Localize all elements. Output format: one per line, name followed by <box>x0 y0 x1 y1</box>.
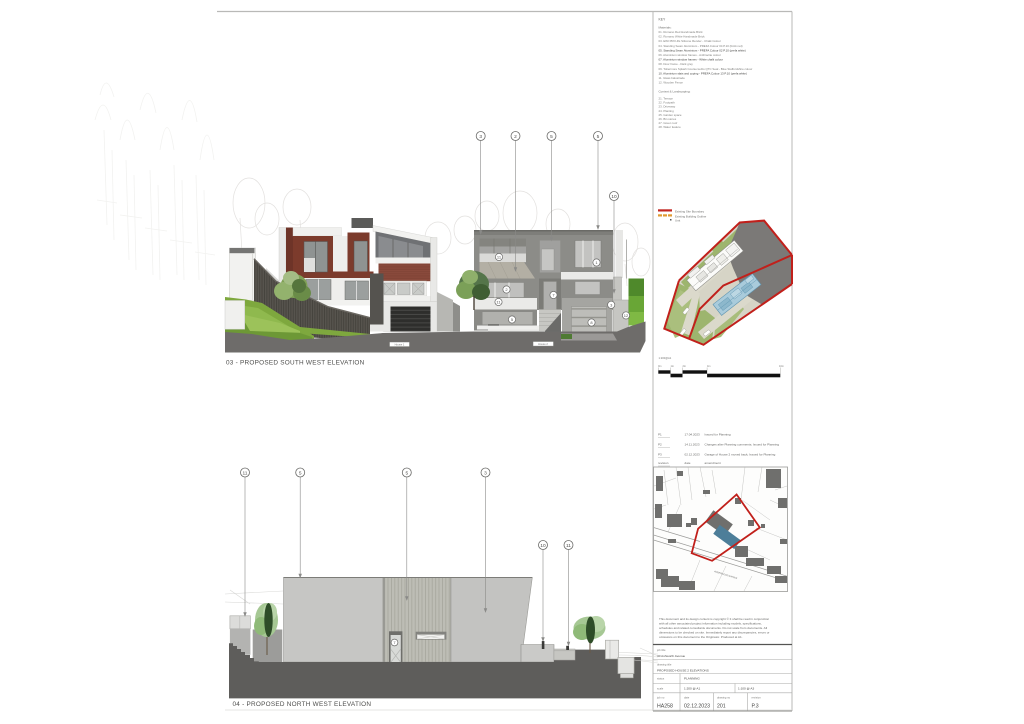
svg-text:1:100 @ A3: 1:100 @ A3 <box>738 687 754 691</box>
svg-text:HA258: HA258 <box>657 704 673 710</box>
svg-text:17.04.2023: 17.04.2023 <box>685 433 701 437</box>
svg-text:job title: job title <box>656 648 666 652</box>
svg-text:3: 3 <box>479 134 482 140</box>
svg-text:02.12.2023: 02.12.2023 <box>685 453 701 457</box>
svg-text:schedules and related consulta: schedules and related consultants docume… <box>659 626 767 630</box>
svg-text:1:200@A1: 1:200@A1 <box>659 356 672 360</box>
svg-text:5: 5 <box>299 470 302 476</box>
svg-text:Changes after Planning comment: Changes after Planning comments; Issued … <box>705 443 780 447</box>
svg-text:revision: revision <box>752 696 762 700</box>
svg-text:14.11.2023: 14.11.2023 <box>685 443 700 447</box>
svg-text:09. Tobermore Splash Course k: 09. Tobermore Splash Course kerbs QTC Se… <box>659 67 753 71</box>
svg-text:11: 11 <box>243 470 248 476</box>
svg-text:date: date <box>684 696 690 700</box>
svg-text:drawing title: drawing title <box>657 663 672 667</box>
svg-text:P.3: P.3 <box>752 704 759 710</box>
svg-text:4m: 4m <box>707 365 710 368</box>
svg-text:12: 12 <box>624 313 629 318</box>
svg-text:07. Aluminium window frames -: 07. Aluminium window frames - White chal… <box>659 58 723 62</box>
svg-text:Materials:: Materials: <box>659 26 672 30</box>
svg-text:1m: 1m <box>671 365 674 368</box>
svg-text:revision: revision <box>658 461 669 465</box>
svg-text:11. Glass balustrade: 11. Glass balustrade <box>659 76 686 80</box>
svg-text:job no: job no <box>656 696 665 700</box>
svg-text:5: 5 <box>597 134 600 140</box>
svg-text:status: status <box>657 677 665 681</box>
svg-text:04. Standing Seam Aluminium -: 04. Standing Seam Aluminium - PREFA Colo… <box>659 44 743 48</box>
svg-text:PLANNING: PLANNING <box>684 677 700 681</box>
svg-text:11: 11 <box>566 543 571 549</box>
svg-text:03. EWI PRO-Rs Silicone Rende: 03. EWI PRO-Rs Silicone Render - Chalk C… <box>659 39 721 43</box>
svg-text:28. Water feature: 28. Water feature <box>659 125 682 129</box>
svg-text:P3: P3 <box>658 453 662 457</box>
svg-text:12. Wooden Fence: 12. Wooden Fence <box>659 81 684 85</box>
svg-text:dimensions to be checked on si: dimensions to be checked on site. Immedi… <box>659 631 769 635</box>
svg-text:01. Romano Red Handmade Brick: 01. Romano Red Handmade Brick <box>659 30 704 34</box>
svg-text:scale: scale <box>657 687 664 691</box>
svg-text:Unit: Unit <box>675 218 680 222</box>
svg-text:06. Aluminium window frames -: 06. Aluminium window frames - Anthracite… <box>659 53 721 57</box>
svg-text:05. Standing Seam Aluminium -: 05. Standing Seam Aluminium - PREFA Colo… <box>659 48 746 52</box>
svg-text:10: 10 <box>540 543 546 549</box>
svg-text:10. Aluminium slats and copin: 10. Aluminium slats and coping - PREFA C… <box>659 71 747 75</box>
svg-text:House 1: House 1 <box>395 343 405 347</box>
svg-text:This document and its design c: This document and its design content is … <box>659 617 769 621</box>
svg-text:5: 5 <box>405 470 408 476</box>
svg-text:P2: P2 <box>658 443 662 447</box>
svg-text:1:200 @ A1: 1:200 @ A1 <box>684 687 700 691</box>
svg-text:2m: 2m <box>683 365 686 368</box>
svg-text:3: 3 <box>484 470 487 476</box>
svg-text:Context & Landscaping:: Context & Landscaping: <box>659 90 691 94</box>
svg-text:03 - PROPOSED SOUTH WEST ELEVA: 03 - PROPOSED SOUTH WEST ELEVATION <box>226 360 365 367</box>
svg-text:omissions on this document to: omissions on this document to the Origin… <box>659 635 743 639</box>
svg-text:201: 201 <box>717 704 726 710</box>
svg-text:Existing Site Boundary: Existing Site Boundary <box>675 209 705 213</box>
svg-text:Garage of House 2 moved back;: Garage of House 2 moved back; Issued for… <box>705 453 776 457</box>
svg-text:02.12.2023: 02.12.2023 <box>684 704 710 710</box>
svg-text:drawing no: drawing no <box>717 696 731 700</box>
svg-text:40 Ashworth Avenue: 40 Ashworth Avenue <box>657 654 685 658</box>
svg-text:KEY: KEY <box>659 18 667 22</box>
svg-text:date: date <box>685 461 691 465</box>
svg-text:10: 10 <box>611 194 617 200</box>
svg-text:PROPOSED HOUSE 2 ELEVATIONS: PROPOSED HOUSE 2 ELEVATIONS <box>657 668 709 672</box>
svg-text:2: 2 <box>514 134 517 140</box>
svg-text:08. Door frame - Dark grey: 08. Door frame - Dark grey <box>659 62 694 66</box>
svg-text:10m: 10m <box>779 365 784 368</box>
svg-text:02. Romano White Handmade Bri: 02. Romano White Handmade Brick <box>659 35 706 39</box>
svg-text:04 - PROPOSED NORTH WEST ELEVA: 04 - PROPOSED NORTH WEST ELEVATION <box>233 701 372 708</box>
svg-text:0m: 0m <box>658 365 661 368</box>
svg-text:with all other associated proj: with all other associated project inform… <box>659 622 762 626</box>
svg-text:amendment: amendment <box>705 461 721 465</box>
svg-text:House 2: House 2 <box>538 342 548 346</box>
svg-text:P1: P1 <box>658 433 662 437</box>
svg-text:Issued for Planning: Issued for Planning <box>705 433 731 437</box>
svg-text:5: 5 <box>550 134 553 140</box>
